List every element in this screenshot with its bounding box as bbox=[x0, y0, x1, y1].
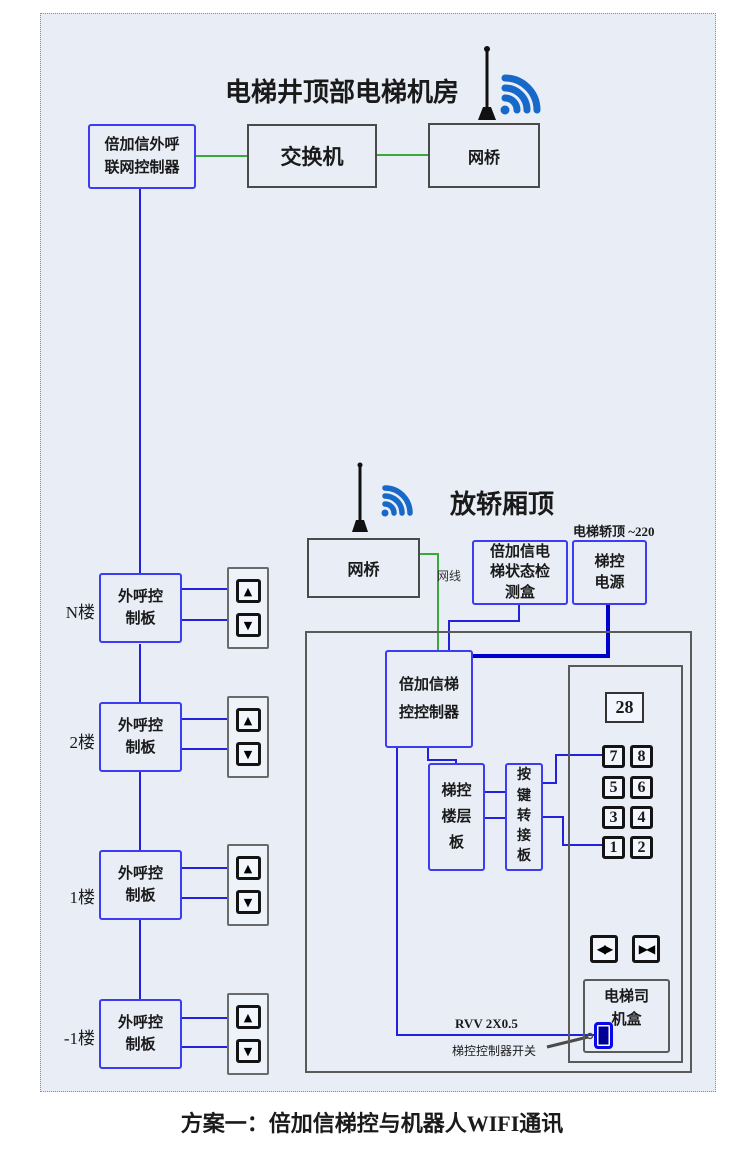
door-close-button: ▶◀ bbox=[632, 935, 660, 963]
controller-switch bbox=[594, 1022, 613, 1049]
outcall-board-box: 外呼控 制板 bbox=[99, 850, 182, 920]
hall-button-panel: ▲ ▼ bbox=[227, 993, 269, 1075]
floor-label: 1楼 bbox=[40, 883, 95, 908]
up-arrow-icon: ▲ bbox=[236, 1005, 261, 1029]
floor-label: -1楼 bbox=[40, 1024, 95, 1049]
up-arrow-icon: ▲ bbox=[236, 856, 261, 880]
rvv-cable-label: RVV 2X0.5 bbox=[455, 1016, 518, 1032]
door-open-button: ◀▶ bbox=[590, 935, 618, 963]
outcall-board-box: 外呼控 制板 bbox=[99, 573, 182, 643]
cable-floor-1-buttons bbox=[182, 868, 227, 898]
controller-switch-note: 梯控控制器开关 bbox=[452, 1042, 536, 1059]
car-button-5: 5 bbox=[602, 776, 625, 799]
elevator-status-box: 倍加信电 梯状态检 测盒 bbox=[472, 540, 568, 605]
hall-button-panel: ▲ ▼ bbox=[227, 844, 269, 926]
outcall-network-controller-box: 倍加信外呼 联网控制器 bbox=[88, 124, 196, 189]
diagram-page: 电梯井顶部电梯机房 倍加信外呼 联网控制器 交换机 网桥 N楼 外呼控 制板 ▲… bbox=[0, 0, 744, 1162]
floor-display: 28 bbox=[605, 692, 644, 723]
hall-button-panel: ▲ ▼ bbox=[227, 567, 269, 649]
machine-room-title: 电梯井顶部电梯机房 bbox=[225, 72, 459, 109]
door-open-icon: ◀▶ bbox=[597, 942, 611, 956]
cable-floor-n-buttons bbox=[182, 589, 227, 620]
wifi-icon bbox=[501, 78, 538, 115]
outcall-board-box: 外呼控 制板 bbox=[99, 702, 182, 772]
outcall-board-box: 外呼控 制板 bbox=[99, 999, 182, 1069]
network-bridge-box: 网桥 bbox=[428, 123, 540, 188]
car-button-8: 8 bbox=[630, 745, 653, 768]
hall-button-panel: ▲ ▼ bbox=[227, 696, 269, 778]
car-button-4: 4 bbox=[630, 806, 653, 829]
door-close-icon: ▶◀ bbox=[639, 942, 653, 956]
down-arrow-icon: ▼ bbox=[236, 1039, 261, 1063]
car-button-2: 2 bbox=[630, 836, 653, 859]
car-button-6: 6 bbox=[630, 776, 653, 799]
network-cable-label: 网线 bbox=[437, 567, 461, 584]
control-power-box: 梯控 电源 bbox=[572, 540, 647, 605]
car-button-7: 7 bbox=[602, 745, 625, 768]
up-arrow-icon: ▲ bbox=[236, 579, 261, 603]
antenna-icon bbox=[478, 46, 496, 120]
cable-floor-2-buttons bbox=[182, 719, 227, 749]
car-button-3: 3 bbox=[602, 806, 625, 829]
down-arrow-icon: ▼ bbox=[236, 613, 261, 637]
key-adapter-box: 按 键 转 接 板 bbox=[505, 763, 543, 871]
wifi-icon bbox=[382, 488, 411, 517]
floor-board-box: 梯控 楼层 板 bbox=[428, 763, 485, 871]
down-arrow-icon: ▼ bbox=[236, 742, 261, 766]
floor-label: N楼 bbox=[40, 598, 95, 623]
down-arrow-icon: ▼ bbox=[236, 890, 261, 914]
elevator-control-controller-box: 倍加信梯 控控制器 bbox=[385, 650, 473, 748]
floor-label: 2楼 bbox=[40, 728, 95, 753]
up-arrow-icon: ▲ bbox=[236, 708, 261, 732]
diagram-caption: 方案一：倍加信梯控与机器人WIFI通讯 bbox=[0, 1106, 744, 1138]
car-top-title: 放轿厢顶 bbox=[450, 484, 554, 521]
car-top-power-note: 电梯轿顶 ~220 bbox=[573, 521, 655, 540]
cable-floor-m1-buttons bbox=[182, 1018, 227, 1047]
antenna-icon bbox=[352, 463, 368, 533]
network-bridge2-box: 网桥 bbox=[307, 538, 420, 598]
ethernet-switch-box: 交换机 bbox=[247, 124, 377, 188]
car-button-1: 1 bbox=[602, 836, 625, 859]
